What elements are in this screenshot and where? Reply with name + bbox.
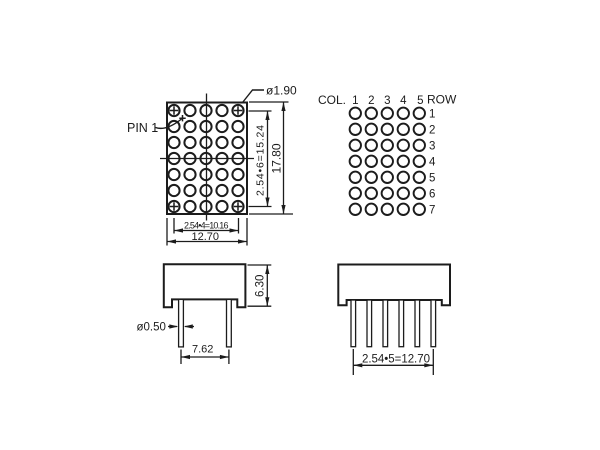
svg-text:ø0.50: ø0.50 <box>137 322 166 334</box>
svg-text:7: 7 <box>429 205 435 217</box>
svg-text:ø1.90: ø1.90 <box>266 84 297 98</box>
svg-text:ROW: ROW <box>427 93 457 107</box>
svg-text:2.54•5=12.70: 2.54•5=12.70 <box>362 353 430 365</box>
svg-text:1: 1 <box>352 95 358 107</box>
svg-text:PIN 1: PIN 1 <box>127 121 158 135</box>
svg-text:COL.: COL. <box>318 93 346 107</box>
svg-text:2.54•4=10.16: 2.54•4=10.16 <box>184 221 229 231</box>
svg-text:3: 3 <box>384 95 390 107</box>
svg-text:2.54•6=15.24: 2.54•6=15.24 <box>255 125 267 196</box>
svg-text:17.80: 17.80 <box>270 143 284 173</box>
svg-text:4: 4 <box>400 95 407 107</box>
svg-text:2: 2 <box>429 125 435 137</box>
svg-text:7.62: 7.62 <box>192 344 213 356</box>
svg-text:5: 5 <box>429 173 435 185</box>
svg-text:6: 6 <box>429 189 435 201</box>
svg-text:5: 5 <box>417 95 423 107</box>
svg-text:2: 2 <box>368 95 374 107</box>
svg-text:6.30: 6.30 <box>255 275 267 297</box>
svg-text:12.70: 12.70 <box>192 231 220 243</box>
svg-text:1: 1 <box>429 109 435 121</box>
svg-text:4: 4 <box>429 157 436 169</box>
svg-text:3: 3 <box>429 141 435 153</box>
